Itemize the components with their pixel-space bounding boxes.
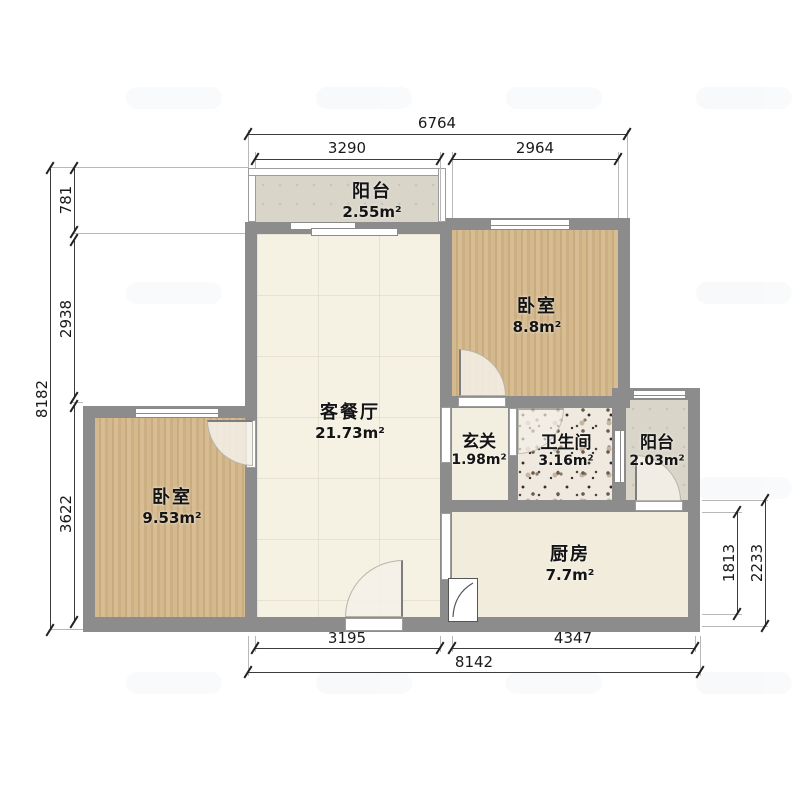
room-name: 卧室	[513, 292, 562, 318]
room-area: 8.8m²	[513, 318, 562, 336]
dim-ext-line	[627, 130, 628, 218]
room-label-kitchen: 厨房 7.7m²	[546, 540, 595, 584]
dim-ext-line	[72, 233, 245, 234]
kitchen-door-icon	[448, 578, 478, 622]
dim-value-left-total: 8182	[33, 380, 51, 418]
balcony-railing-top	[248, 168, 446, 176]
dim-line-bottom-left	[255, 648, 440, 649]
dim-line-bottom-total	[248, 672, 700, 673]
balcony-railing-left	[248, 168, 256, 222]
window-bathroom-balcony	[614, 430, 625, 483]
dim-ext-line	[618, 152, 619, 218]
room-area: 2.55m²	[342, 203, 401, 221]
dim-value-top-total: 6764	[418, 114, 456, 132]
kitchen-door-symbol	[448, 578, 478, 622]
room-name: 客餐厅	[315, 398, 385, 424]
dim-value-left-middle: 2938	[57, 300, 75, 338]
watermark-logo: ✓	[40, 35, 118, 113]
dim-line-top-total	[248, 134, 627, 135]
room-name: 阳台	[342, 177, 401, 203]
dim-ext-line	[50, 629, 83, 630]
dim-line-bottom-right	[452, 648, 695, 649]
watermark-logo: ✓	[230, 35, 308, 113]
dim-ext-line	[702, 500, 768, 501]
room-area: 3.16m²	[538, 453, 593, 469]
window-bedroom-right	[490, 219, 570, 230]
room-area: 9.53m²	[142, 509, 201, 527]
floor-plan-canvas: ✓✓✓✓✓✓✓✓✓✓✓✓✓✓✓✓✓✓✓✓	[0, 0, 800, 800]
room-label-balcony-right: 阳台 2.03m²	[629, 428, 684, 469]
dim-ext-line	[248, 130, 249, 168]
room-area: 2.03m²	[629, 453, 684, 469]
dim-value-right-outer: 2233	[748, 544, 766, 582]
dim-value-bottom-total: 8142	[455, 653, 493, 671]
window-balcony-right	[633, 390, 686, 399]
dim-value-left-bottom: 3622	[57, 495, 75, 533]
door-opening-balcony-right	[635, 501, 683, 511]
room-label-bedroom-left: 卧室 9.53m²	[142, 483, 201, 527]
dim-line-top-right	[452, 159, 618, 160]
dim-value-top-right: 2964	[516, 139, 554, 157]
room-area: 1.98m²	[451, 452, 506, 468]
room-name: 厨房	[546, 540, 595, 566]
watermark-logo: ✓	[610, 35, 688, 113]
room-name: 卧室	[142, 483, 201, 509]
dim-ext-line	[452, 152, 453, 218]
room-area: 21.73m²	[315, 424, 385, 442]
dim-line-top-left	[255, 159, 440, 160]
room-label-balcony-top: 阳台 2.55m²	[342, 177, 401, 221]
room-label-bedroom-right: 卧室 8.8m²	[513, 292, 562, 336]
room-name: 阳台	[629, 428, 684, 453]
dim-ext-line	[440, 152, 441, 222]
room-name: 玄关	[451, 427, 506, 452]
room-label-entry-hall: 玄关 1.98m²	[451, 427, 506, 468]
opening-living-hall	[441, 407, 451, 463]
watermark-logo: ✓	[40, 230, 118, 308]
room-area: 7.7m²	[546, 566, 595, 584]
dim-value-left-top: 781	[57, 186, 75, 215]
wall-bedroom-right-right	[618, 218, 630, 408]
window-bedroom-left	[135, 408, 219, 418]
room-label-living-dining: 客餐厅 21.73m²	[315, 398, 385, 442]
door-opening-bedroom-right	[458, 397, 506, 407]
door-opening-bathroom	[509, 408, 517, 456]
opening-living-kitchen	[441, 513, 451, 580]
watermark-logo: ✓	[420, 35, 498, 113]
window-balcony-living-pane2	[311, 228, 398, 236]
dim-value-bottom-left: 3195	[328, 629, 366, 647]
room-name: 卫生间	[538, 428, 593, 453]
wall-living-left-upper	[245, 222, 257, 418]
dim-value-right-inner: 1813	[720, 544, 738, 582]
dim-value-top-left: 3290	[328, 139, 366, 157]
dim-ext-line	[50, 167, 248, 168]
wall-bedroom-left-left	[83, 406, 95, 632]
dim-ext-line	[702, 626, 768, 627]
dim-value-bottom-right: 4347	[554, 629, 592, 647]
room-label-bathroom: 卫生间 3.16m²	[538, 428, 593, 469]
